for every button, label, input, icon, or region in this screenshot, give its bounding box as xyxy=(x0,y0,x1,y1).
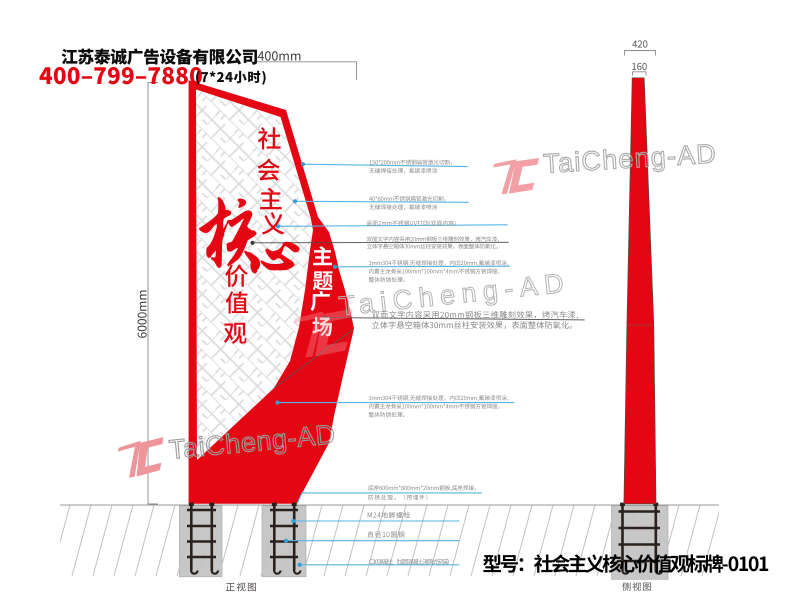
svg-text:TaiCheng-AD: TaiCheng-AD xyxy=(543,138,718,179)
